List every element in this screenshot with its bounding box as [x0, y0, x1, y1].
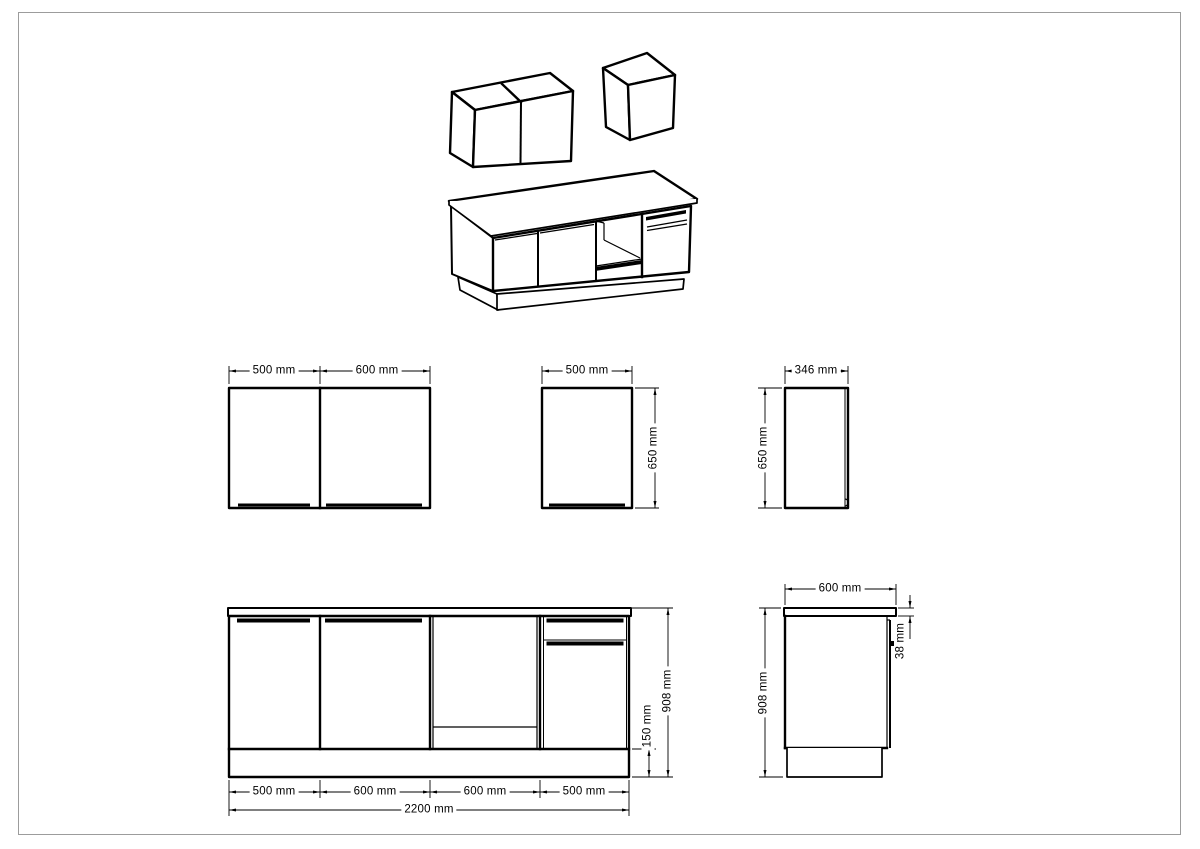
- worktop-side: [784, 608, 896, 616]
- dim-label-wall-single-height: 650 mm: [648, 424, 661, 473]
- iso-wall-cabinet-pair: [450, 73, 573, 167]
- iso-base-cabinet-run: [449, 171, 697, 310]
- elev-wall-cabinet-pair: [229, 366, 430, 508]
- iso-wall-cabinet-single: [603, 53, 675, 140]
- linework-svg: [0, 0, 1200, 849]
- dim-label-side-depth: 600 mm: [816, 583, 865, 596]
- elev-wall-cabinet-side: [758, 366, 848, 508]
- dim-label-base-seg-2: 600 mm: [351, 786, 400, 799]
- dim-label-base-seg-3: 600 mm: [461, 786, 510, 799]
- elev-wall-cabinet-single: [542, 366, 659, 508]
- dim-label-wall-pair-left-width: 500 mm: [250, 365, 299, 378]
- dim-label-worktop-thickness: 38 mm: [895, 620, 908, 662]
- dim-label-wall-pair-right-width: 600 mm: [353, 365, 402, 378]
- door-handle-side: [890, 641, 894, 646]
- dim-label-wall-side-depth: 346 mm: [792, 365, 841, 378]
- dim-label-side-height: 908 mm: [758, 669, 771, 718]
- dim-label-base-seg-1: 500 mm: [250, 786, 299, 799]
- dim-label-base-plinth-height: 150 mm: [642, 702, 655, 751]
- elev-base-cabinet-side: [759, 584, 914, 777]
- dim-label-base-seg-4: 500 mm: [560, 786, 609, 799]
- drawing-sheet: 500 mm 600 mm 500 mm 650 mm 346 mm 650 m…: [0, 0, 1200, 849]
- plinth-side: [787, 748, 882, 777]
- dim-label-wall-single-width: 500 mm: [563, 365, 612, 378]
- dim-label-base-height: 908 mm: [662, 667, 675, 716]
- dim-label-base-total-width: 2200 mm: [401, 804, 456, 817]
- dim-label-wall-side-height: 650 mm: [758, 424, 771, 473]
